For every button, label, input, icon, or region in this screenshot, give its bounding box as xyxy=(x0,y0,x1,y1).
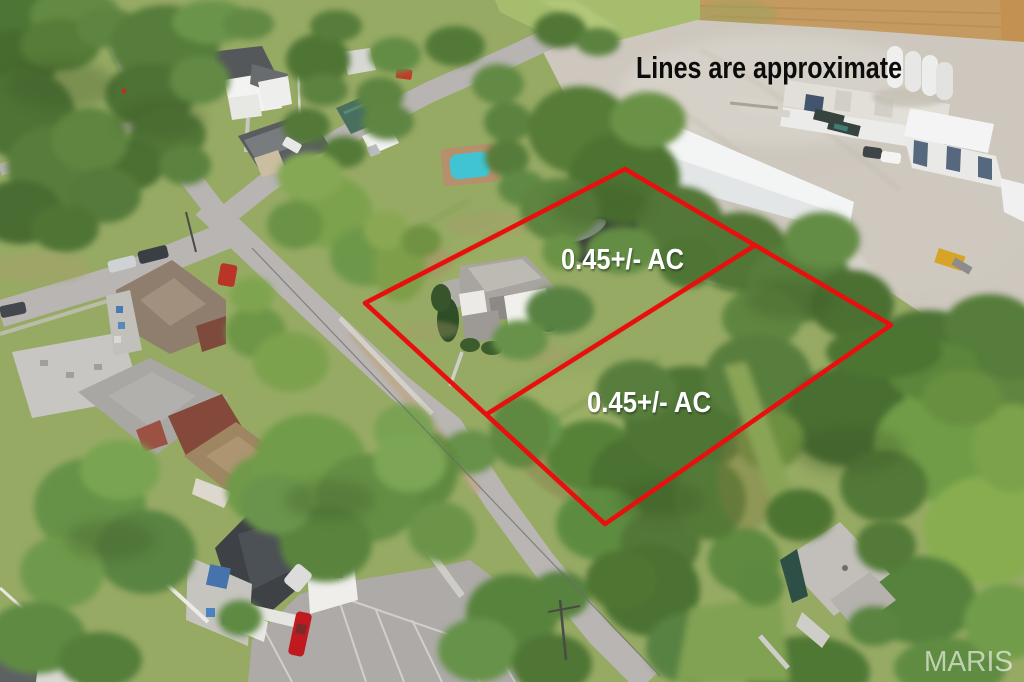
svg-text:0.45+/- AC: 0.45+/- AC xyxy=(587,387,711,419)
svg-text:Lines are approximate: Lines are approximate xyxy=(636,51,902,85)
svg-text:0.45+/- AC: 0.45+/- AC xyxy=(561,244,684,276)
svg-text:MARIS: MARIS xyxy=(924,646,1013,678)
